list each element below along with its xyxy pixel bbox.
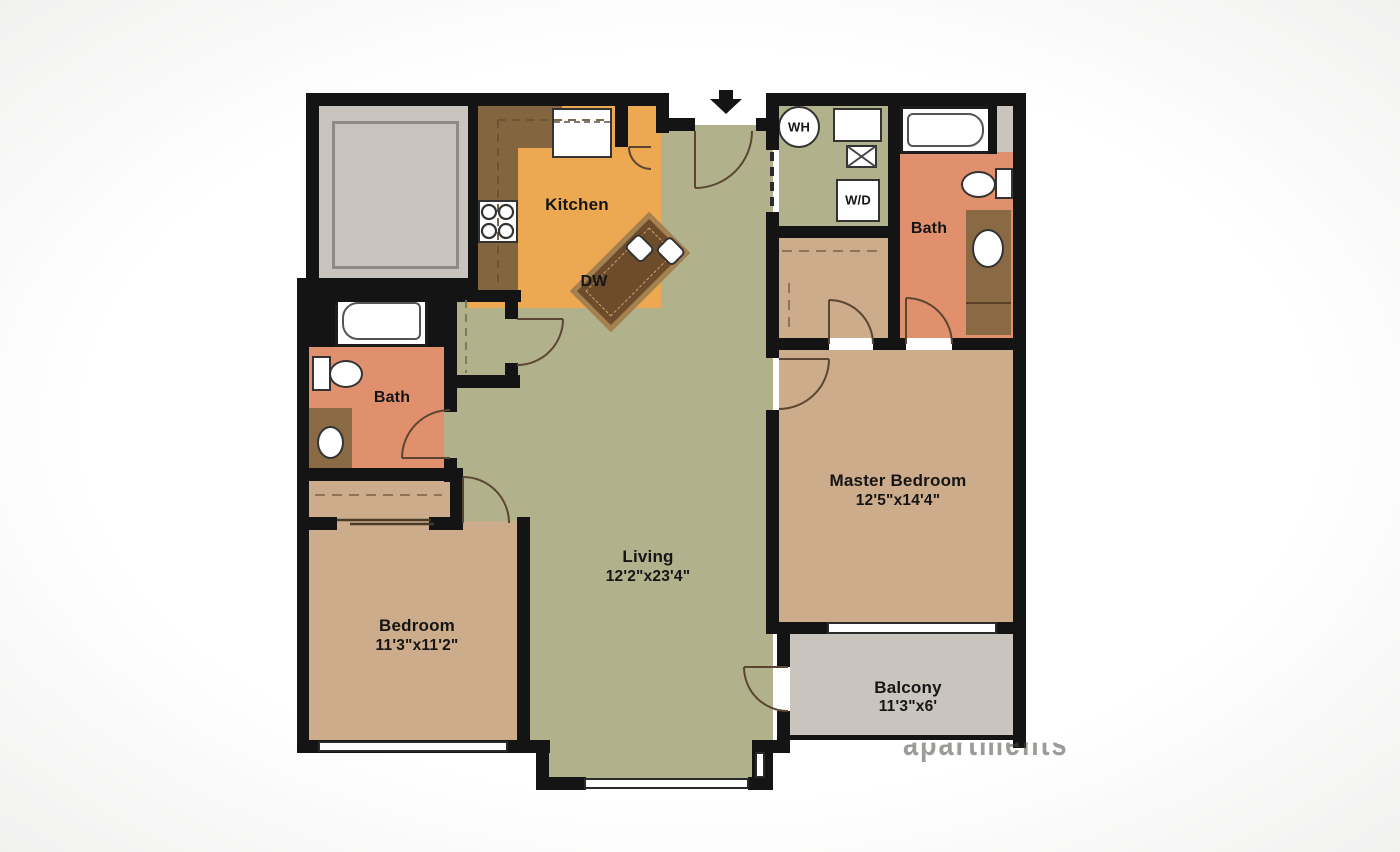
bathtub-master: [900, 106, 991, 154]
sink-main: [317, 426, 344, 459]
bedroom-closet-floor: [309, 479, 450, 521]
label-balcony-dims: 11'3"x6': [879, 698, 938, 716]
wall-segment: [536, 777, 586, 790]
wall-segment: [505, 292, 518, 319]
linen-niche-floor: [995, 106, 1014, 152]
bathtub-main-basin: [342, 302, 421, 340]
wall-segment: [766, 93, 779, 150]
wall-segment: [615, 93, 628, 147]
label-master-bedroom-dims: 12'5"x14'4": [856, 492, 941, 510]
toilet-main-bowl: [329, 360, 363, 388]
sink-master: [972, 229, 1004, 268]
wall-segment: [444, 375, 520, 388]
wall-segment: [450, 468, 463, 530]
wall-segment: [988, 106, 997, 154]
wall-segment: [517, 517, 530, 753]
room-living-floor: [661, 125, 773, 315]
wall-segment: [297, 468, 457, 481]
label-living: Living: [622, 547, 673, 567]
wall-segment: [888, 93, 900, 350]
wall-segment: [1013, 93, 1026, 748]
wall-segment: [996, 622, 1014, 634]
balcony-railing: [790, 735, 1014, 740]
wall-segment: [777, 711, 790, 753]
wall-segment: [766, 338, 829, 350]
stairwell-inner-outline: [332, 121, 459, 269]
wall-segment: [873, 338, 906, 350]
laundry-sink: [846, 145, 877, 168]
wall-segment: [766, 226, 900, 238]
floorplan-canvas: Kitchen DW Living 12'2"x23'4" Bedroom 11…: [0, 0, 1400, 852]
wall-segment: [468, 93, 478, 302]
bathtub-main: [335, 295, 428, 347]
label-balcony: Balcony: [874, 678, 942, 698]
label-bath-main: Bath: [374, 389, 410, 407]
wall-segment: [766, 410, 779, 622]
entry-arrow: [710, 90, 742, 114]
wall-segment: [766, 622, 828, 634]
bathtub-master-basin: [907, 113, 984, 147]
living-window: [584, 778, 749, 789]
washer: [833, 108, 882, 142]
label-dishwasher: DW: [580, 273, 607, 291]
label-water-heater: WH: [788, 120, 810, 135]
wall-segment: [444, 292, 457, 412]
wall-segment: [309, 292, 335, 347]
wall-segment: [952, 338, 1014, 350]
toilet-master-tank: [995, 168, 1013, 199]
label-living-dims: 12'2"x23'4": [606, 568, 691, 586]
stove: [478, 200, 518, 243]
balcony-sliding-door: [827, 622, 997, 634]
master-closet-floor: [779, 238, 888, 338]
label-bath-master: Bath: [911, 220, 947, 238]
living-side-window: [755, 752, 765, 778]
label-master-bedroom: Master Bedroom: [830, 471, 967, 491]
room-living-floor: [530, 306, 773, 746]
bedroom-window: [318, 741, 508, 752]
label-kitchen: Kitchen: [545, 195, 609, 215]
kitchen-counter: [478, 106, 562, 148]
wall-segment: [668, 118, 695, 131]
refrigerator: [552, 108, 612, 158]
label-washer-dryer: W/D: [845, 193, 871, 208]
wall-segment: [306, 93, 319, 300]
label-bedroom: Bedroom: [379, 616, 455, 636]
toilet-master-bowl: [961, 171, 996, 198]
label-bedroom-dims: 11'3"x11'2": [376, 637, 459, 655]
wall-segment: [297, 517, 337, 530]
room-living-floor: [545, 742, 757, 782]
